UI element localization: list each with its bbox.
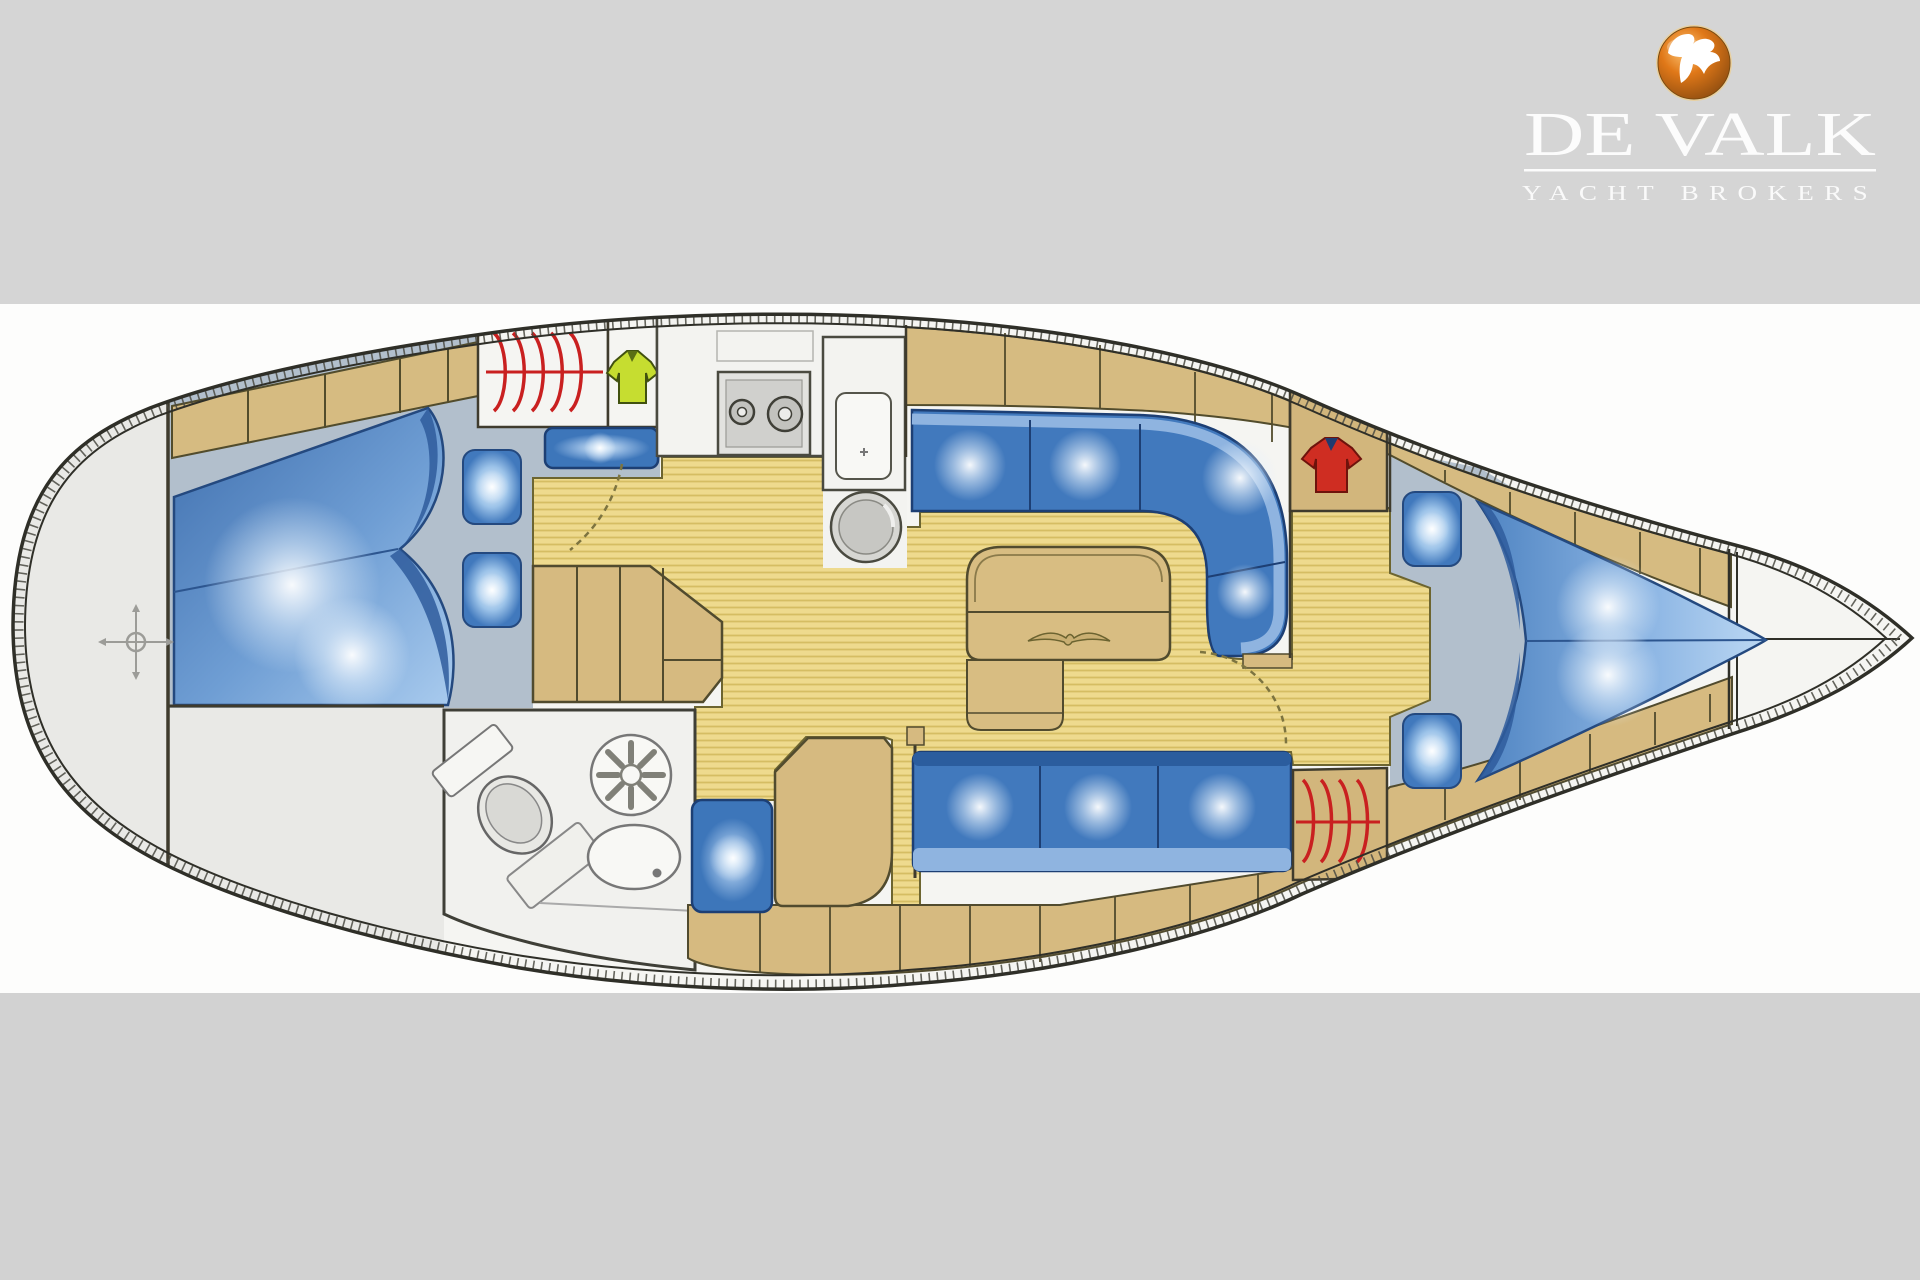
brand-name: DE VALK xyxy=(1524,101,1876,169)
chart-table-icon xyxy=(775,738,892,906)
round-basin-icon xyxy=(831,492,901,562)
galley-sink-icon xyxy=(823,337,905,490)
logo-divider xyxy=(1524,169,1876,172)
lower-settee-icon xyxy=(913,752,1291,871)
aft-seat xyxy=(545,428,658,468)
shower-icon xyxy=(591,735,671,815)
stove-icon xyxy=(718,372,810,455)
page: DE VALK YACHT BROKERS xyxy=(0,0,1920,1280)
bottom-grey-band xyxy=(0,993,1920,1280)
falcon-sphere-icon xyxy=(1656,25,1732,101)
yacht-floorplan-svg: DE VALK YACHT BROKERS xyxy=(0,0,1920,1280)
brand-tagline: YACHT BROKERS xyxy=(1522,181,1878,205)
partition-cap xyxy=(907,727,924,745)
nav-seat xyxy=(692,800,772,912)
